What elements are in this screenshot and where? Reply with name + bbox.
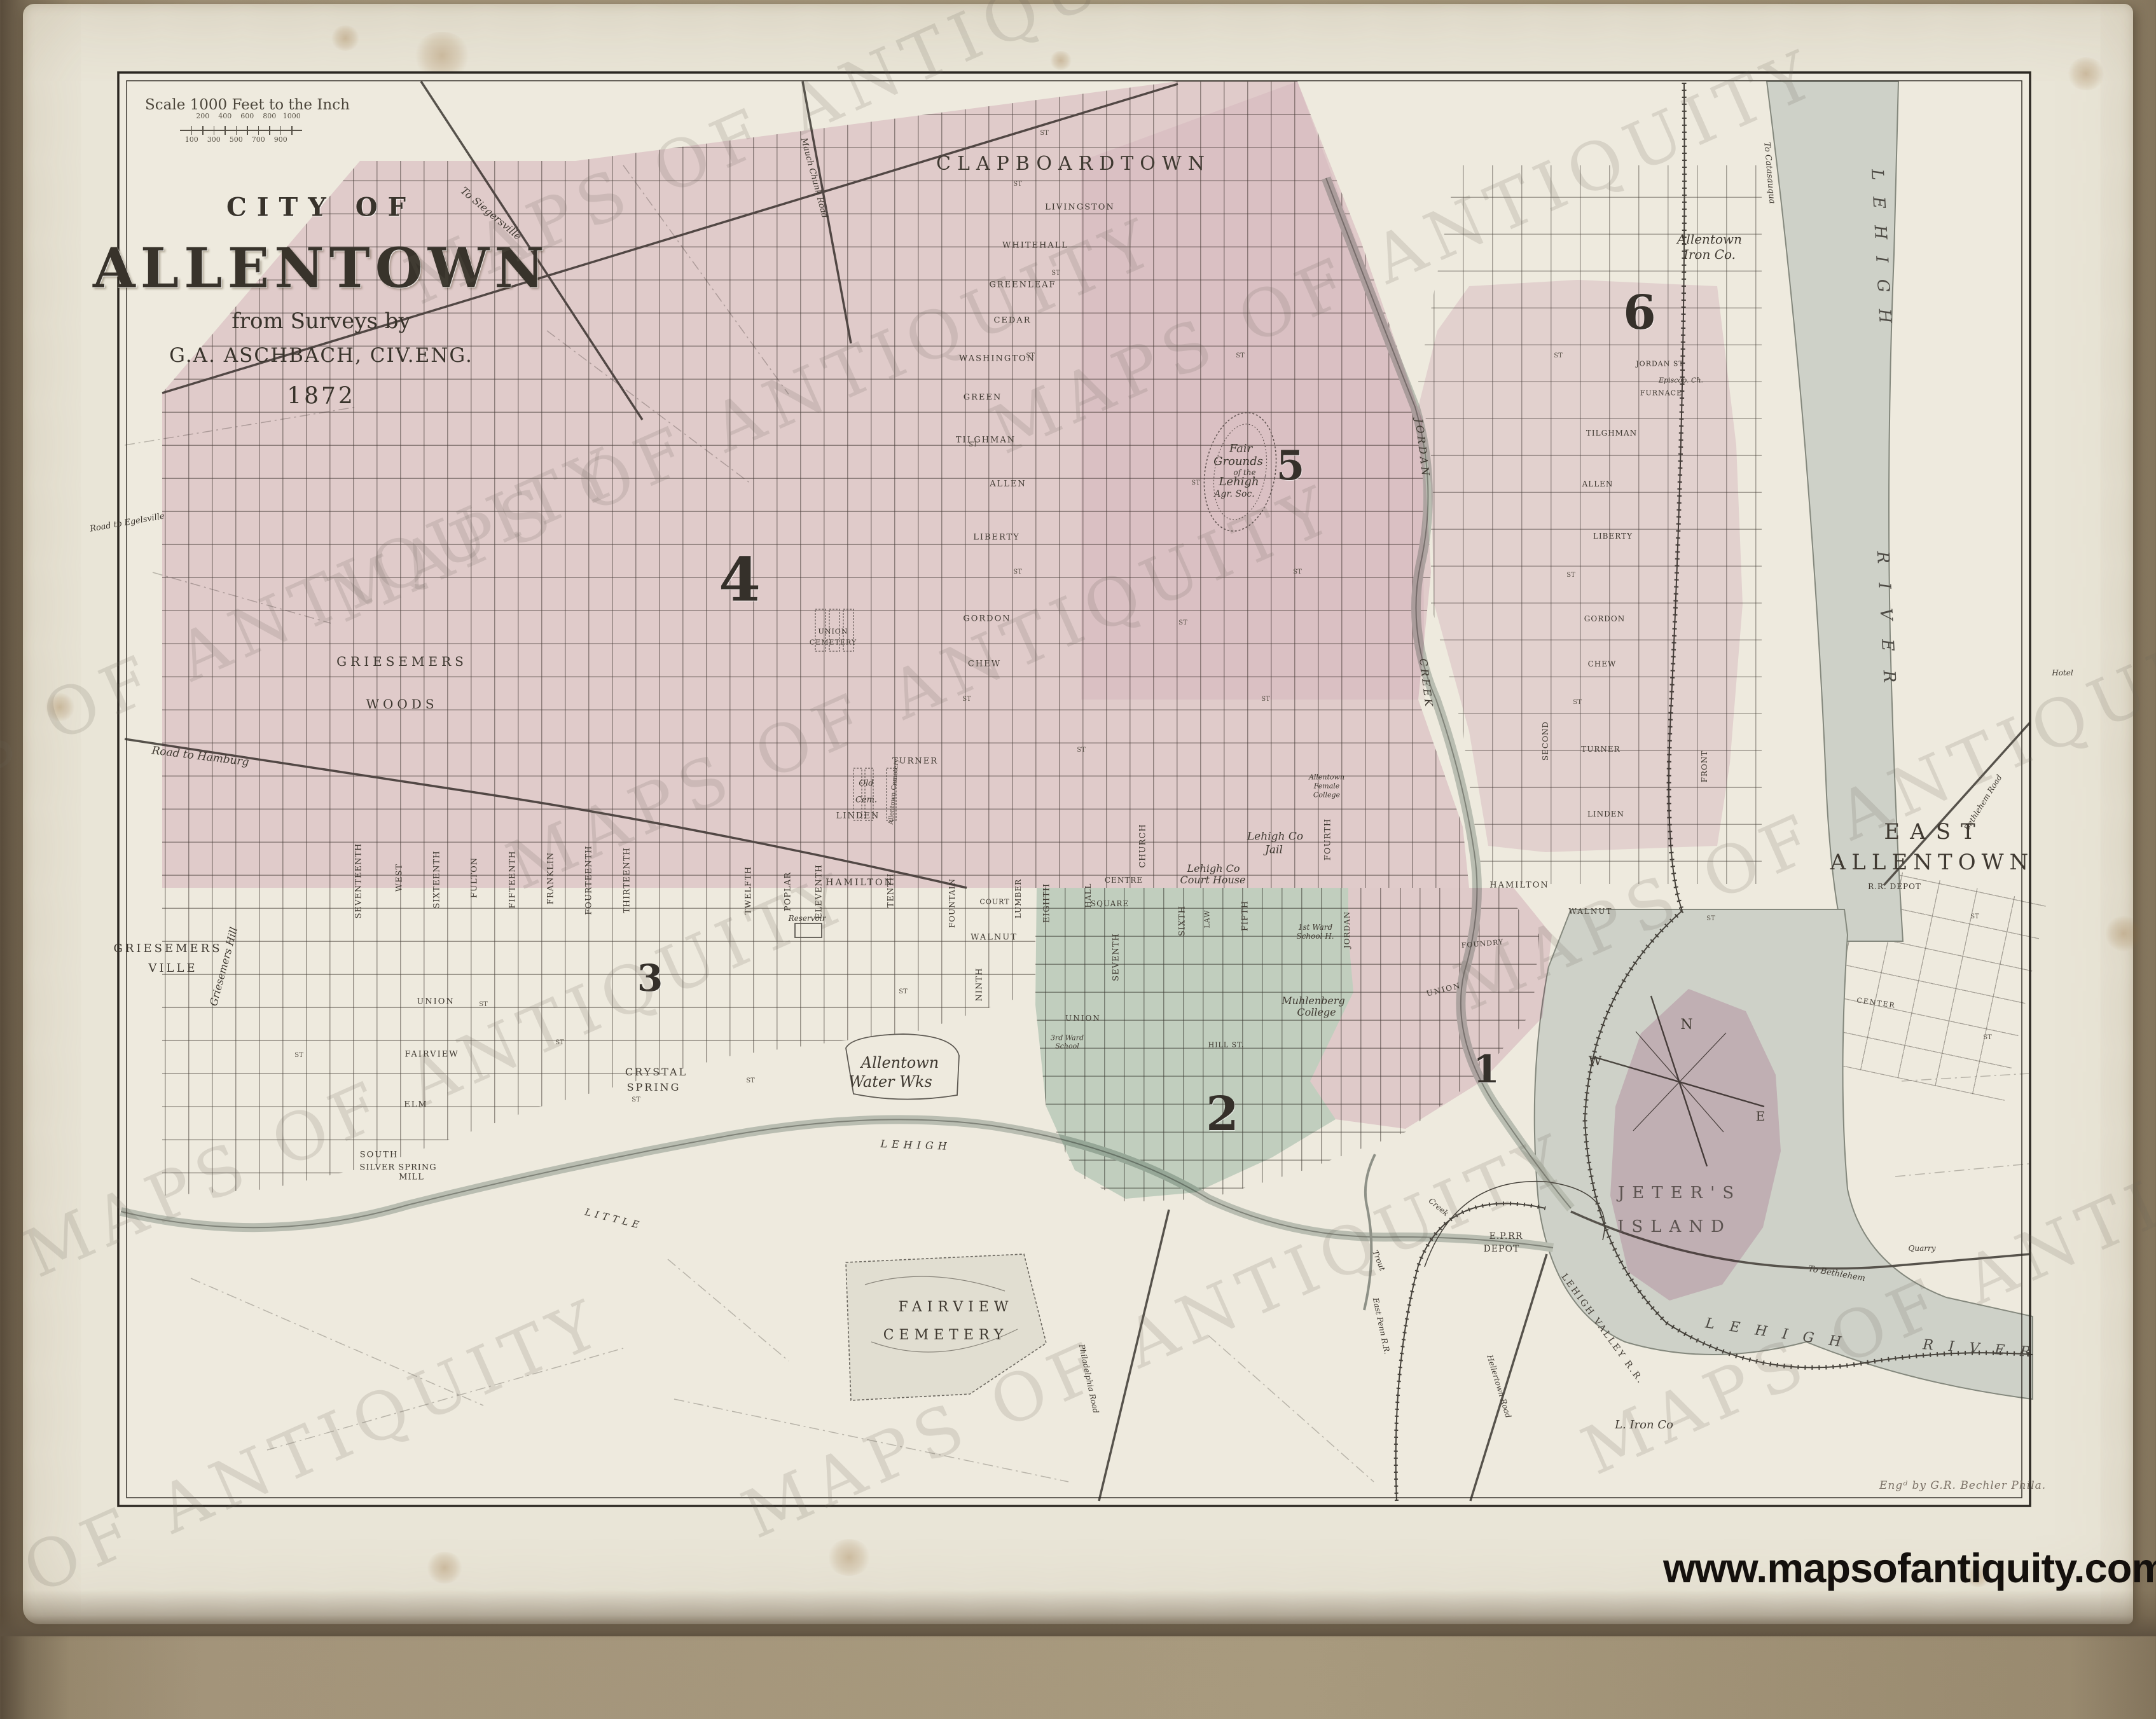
map-label: Agr. Soc.: [1214, 490, 1254, 499]
engraver-credit: Engᵈ by G.R. Bechler Phila.: [1879, 1479, 2046, 1492]
map-label: SQUARE: [1091, 900, 1129, 908]
map-label: College: [1297, 1007, 1336, 1018]
map-label: ST: [1026, 353, 1035, 359]
map-label: UNION: [417, 998, 455, 1006]
map-label: UNION: [1065, 1014, 1101, 1022]
map-label: FOURTH: [1324, 818, 1332, 860]
map-label: Quarry: [1909, 1245, 1936, 1252]
map-label: Allentown: [1309, 774, 1344, 781]
map-label: Allentown: [1677, 233, 1742, 245]
map-label: E.P.RR: [1489, 1232, 1523, 1241]
map-label: ALLENTOWN: [1830, 852, 2035, 873]
map-label: Allentown Cemetery: [888, 759, 901, 825]
map-label: LINDEN: [1587, 810, 1624, 818]
map-label: SOUTH: [360, 1151, 399, 1159]
map-label: East Penn R.R.: [1372, 1297, 1392, 1355]
map-label: Lehigh: [1219, 476, 1259, 488]
map-label: CHEW: [1588, 660, 1617, 668]
map-label: CRYSTAL: [625, 1067, 688, 1077]
map-label: SILVER SPRING: [359, 1164, 436, 1172]
map-label: SECOND: [1542, 721, 1549, 761]
map-label: COURT: [979, 899, 1009, 906]
map-label: LIBERTY: [1593, 532, 1633, 540]
map-label: ISLAND: [1617, 1218, 1732, 1235]
map-label: ALLEN: [990, 480, 1026, 488]
map-label: FURNACE: [1640, 390, 1682, 397]
map-label: ST: [1013, 569, 1022, 576]
map-label: JETER'S: [1618, 1185, 1741, 1201]
map-label: ST: [899, 989, 908, 995]
map-label: CENTER: [1856, 997, 1897, 1009]
map-label: LIBERTY: [973, 534, 1020, 542]
map-label: FOUNTAIN: [948, 878, 956, 928]
map-label: CREEK: [1418, 658, 1434, 710]
map-label: Iron Co.: [1683, 248, 1736, 261]
map-label: JORDAN: [1413, 418, 1430, 478]
compass-e: E: [1756, 1110, 1766, 1122]
map-label: TILGHMAN: [1586, 429, 1637, 437]
map-label: Muhlenberg: [1282, 996, 1344, 1006]
map-label: SEVENTEENTH: [355, 843, 363, 919]
map-label: TURNER: [1581, 745, 1620, 753]
ward-4-number: 4: [719, 550, 761, 611]
map-label: Jail: [1265, 845, 1283, 856]
map-label: Lehigh Co: [1247, 832, 1303, 843]
map-label: ST: [1040, 130, 1049, 137]
map-label: Fair: [1229, 443, 1252, 455]
ward-6-number: 6: [1623, 289, 1656, 336]
map-label: ST: [969, 442, 978, 448]
map-label: SPRING: [627, 1082, 681, 1093]
map-label: To Catasauqua: [1762, 142, 1776, 204]
scanned-map-photo: CITY OF ALLENTOWN from Surveys by G.A. A…: [0, 0, 2156, 1636]
ward-2-number: 2: [1206, 1091, 1239, 1138]
map-label: WALNUT: [971, 934, 1018, 942]
map-label: 1st Ward: [1298, 923, 1332, 931]
map-label: SIXTH: [1178, 906, 1187, 936]
map-label: CEMETERY: [883, 1329, 1009, 1343]
map-label: Road to Hamburg: [151, 745, 250, 768]
map-label: HILL ST.: [1208, 1042, 1245, 1049]
map-label: SEVENTH: [1112, 933, 1121, 981]
map-label: Griesemers Hill: [209, 926, 239, 1007]
map-label: WEST: [396, 864, 404, 892]
map-label: TENTH: [887, 873, 895, 908]
map-label: ST: [746, 1078, 755, 1084]
map-label: FRONT: [1701, 750, 1708, 783]
map-label: ST: [1261, 696, 1270, 703]
map-label: EIGHTH: [1043, 883, 1051, 923]
map-label: ST: [1191, 480, 1200, 487]
map-label: RIVER: [1923, 1338, 2047, 1360]
map-label: CENTRE: [1105, 876, 1143, 884]
map-label: ST: [479, 1002, 488, 1008]
map-label: HAMILTON: [1489, 881, 1549, 890]
map-label: DEPOT: [1484, 1245, 1520, 1253]
map-label: ST: [1970, 914, 1979, 920]
map-label: LINDEN: [836, 812, 880, 820]
map-label: WOODS: [366, 698, 438, 710]
map-label: JORDAN ST: [1636, 361, 1683, 368]
map-label: JORDAN: [1343, 911, 1351, 948]
map-label: ST: [1077, 747, 1086, 754]
map-label: Road to Egelsville: [89, 512, 165, 533]
map-label: LEHIGH: [1869, 169, 1894, 340]
map-label: ST: [1573, 700, 1582, 706]
map-label: Episcop. Ch.: [1659, 377, 1703, 384]
map-label: NINTH: [976, 968, 984, 1002]
map-label: ST: [1013, 181, 1022, 188]
map-label: 3rd Ward: [1051, 1035, 1084, 1042]
map-label: VILLE: [148, 963, 197, 974]
map-label: FIFTH: [1241, 901, 1250, 931]
map-label: GRIESEMERS: [336, 655, 467, 668]
map-label: MILL: [399, 1173, 424, 1182]
map-label: ST: [1178, 620, 1187, 626]
map-label: School H.: [1296, 932, 1334, 940]
map-label: ST: [632, 1097, 640, 1103]
map-label: UNION: [819, 628, 848, 635]
map-label: FAIRVIEW: [899, 1301, 1014, 1315]
map-label: Grounds: [1213, 456, 1263, 467]
map-label: TURNER: [892, 757, 938, 766]
map-label: To Bethlehem: [1807, 1265, 1866, 1283]
compass-n: N: [1680, 1018, 1692, 1032]
map-label: CEMETERY: [810, 639, 857, 646]
ward-1-number: 1: [1473, 1051, 1500, 1089]
map-label: R.R. DEPOT: [1868, 883, 1921, 890]
map-label: ST: [1554, 353, 1563, 359]
map-label: GORDON: [1584, 615, 1625, 623]
map-label: Court House: [1180, 875, 1246, 885]
map-label: LEHIGH: [880, 1139, 951, 1152]
map-label: LEHIGH VALLEY R.R.: [1559, 1273, 1645, 1386]
map-label: Female: [1314, 783, 1340, 790]
map-label: RIVER: [1874, 551, 1898, 702]
compass-w: W: [1589, 1054, 1602, 1067]
map-label: Old: [859, 780, 873, 788]
map-label: ALLEN: [1582, 480, 1614, 488]
map-label: College: [1313, 792, 1340, 799]
map-label: Lehigh Co: [1187, 864, 1240, 874]
map-label: LAW: [1204, 909, 1211, 928]
website-url: www.mapsofantiquity.com: [1663, 1544, 2156, 1592]
map-label: ST: [1566, 572, 1575, 579]
map-label: LITTLE: [584, 1207, 644, 1231]
map-label: SIXTEENTH: [433, 850, 441, 908]
map-label: ST: [1293, 569, 1302, 576]
map-label: Cem.: [855, 796, 877, 804]
map-label: FULTON: [471, 857, 479, 898]
map-label: CHURCH: [1139, 824, 1147, 867]
map-label: Water Wks: [848, 1074, 932, 1089]
map-label: School: [1055, 1043, 1079, 1050]
map-label: ST: [294, 1053, 303, 1059]
map-label: LIVINGSTON: [1045, 204, 1115, 212]
map-label: Hellertown Road: [1486, 1354, 1512, 1419]
map-label: GRIESEMERS: [113, 943, 222, 955]
map-label: ST: [1983, 1035, 1992, 1041]
map-label: LUMBER: [1014, 879, 1022, 918]
map-label: CLAPBOARDTOWN: [936, 155, 1211, 174]
map-label: Allentown: [861, 1055, 939, 1070]
